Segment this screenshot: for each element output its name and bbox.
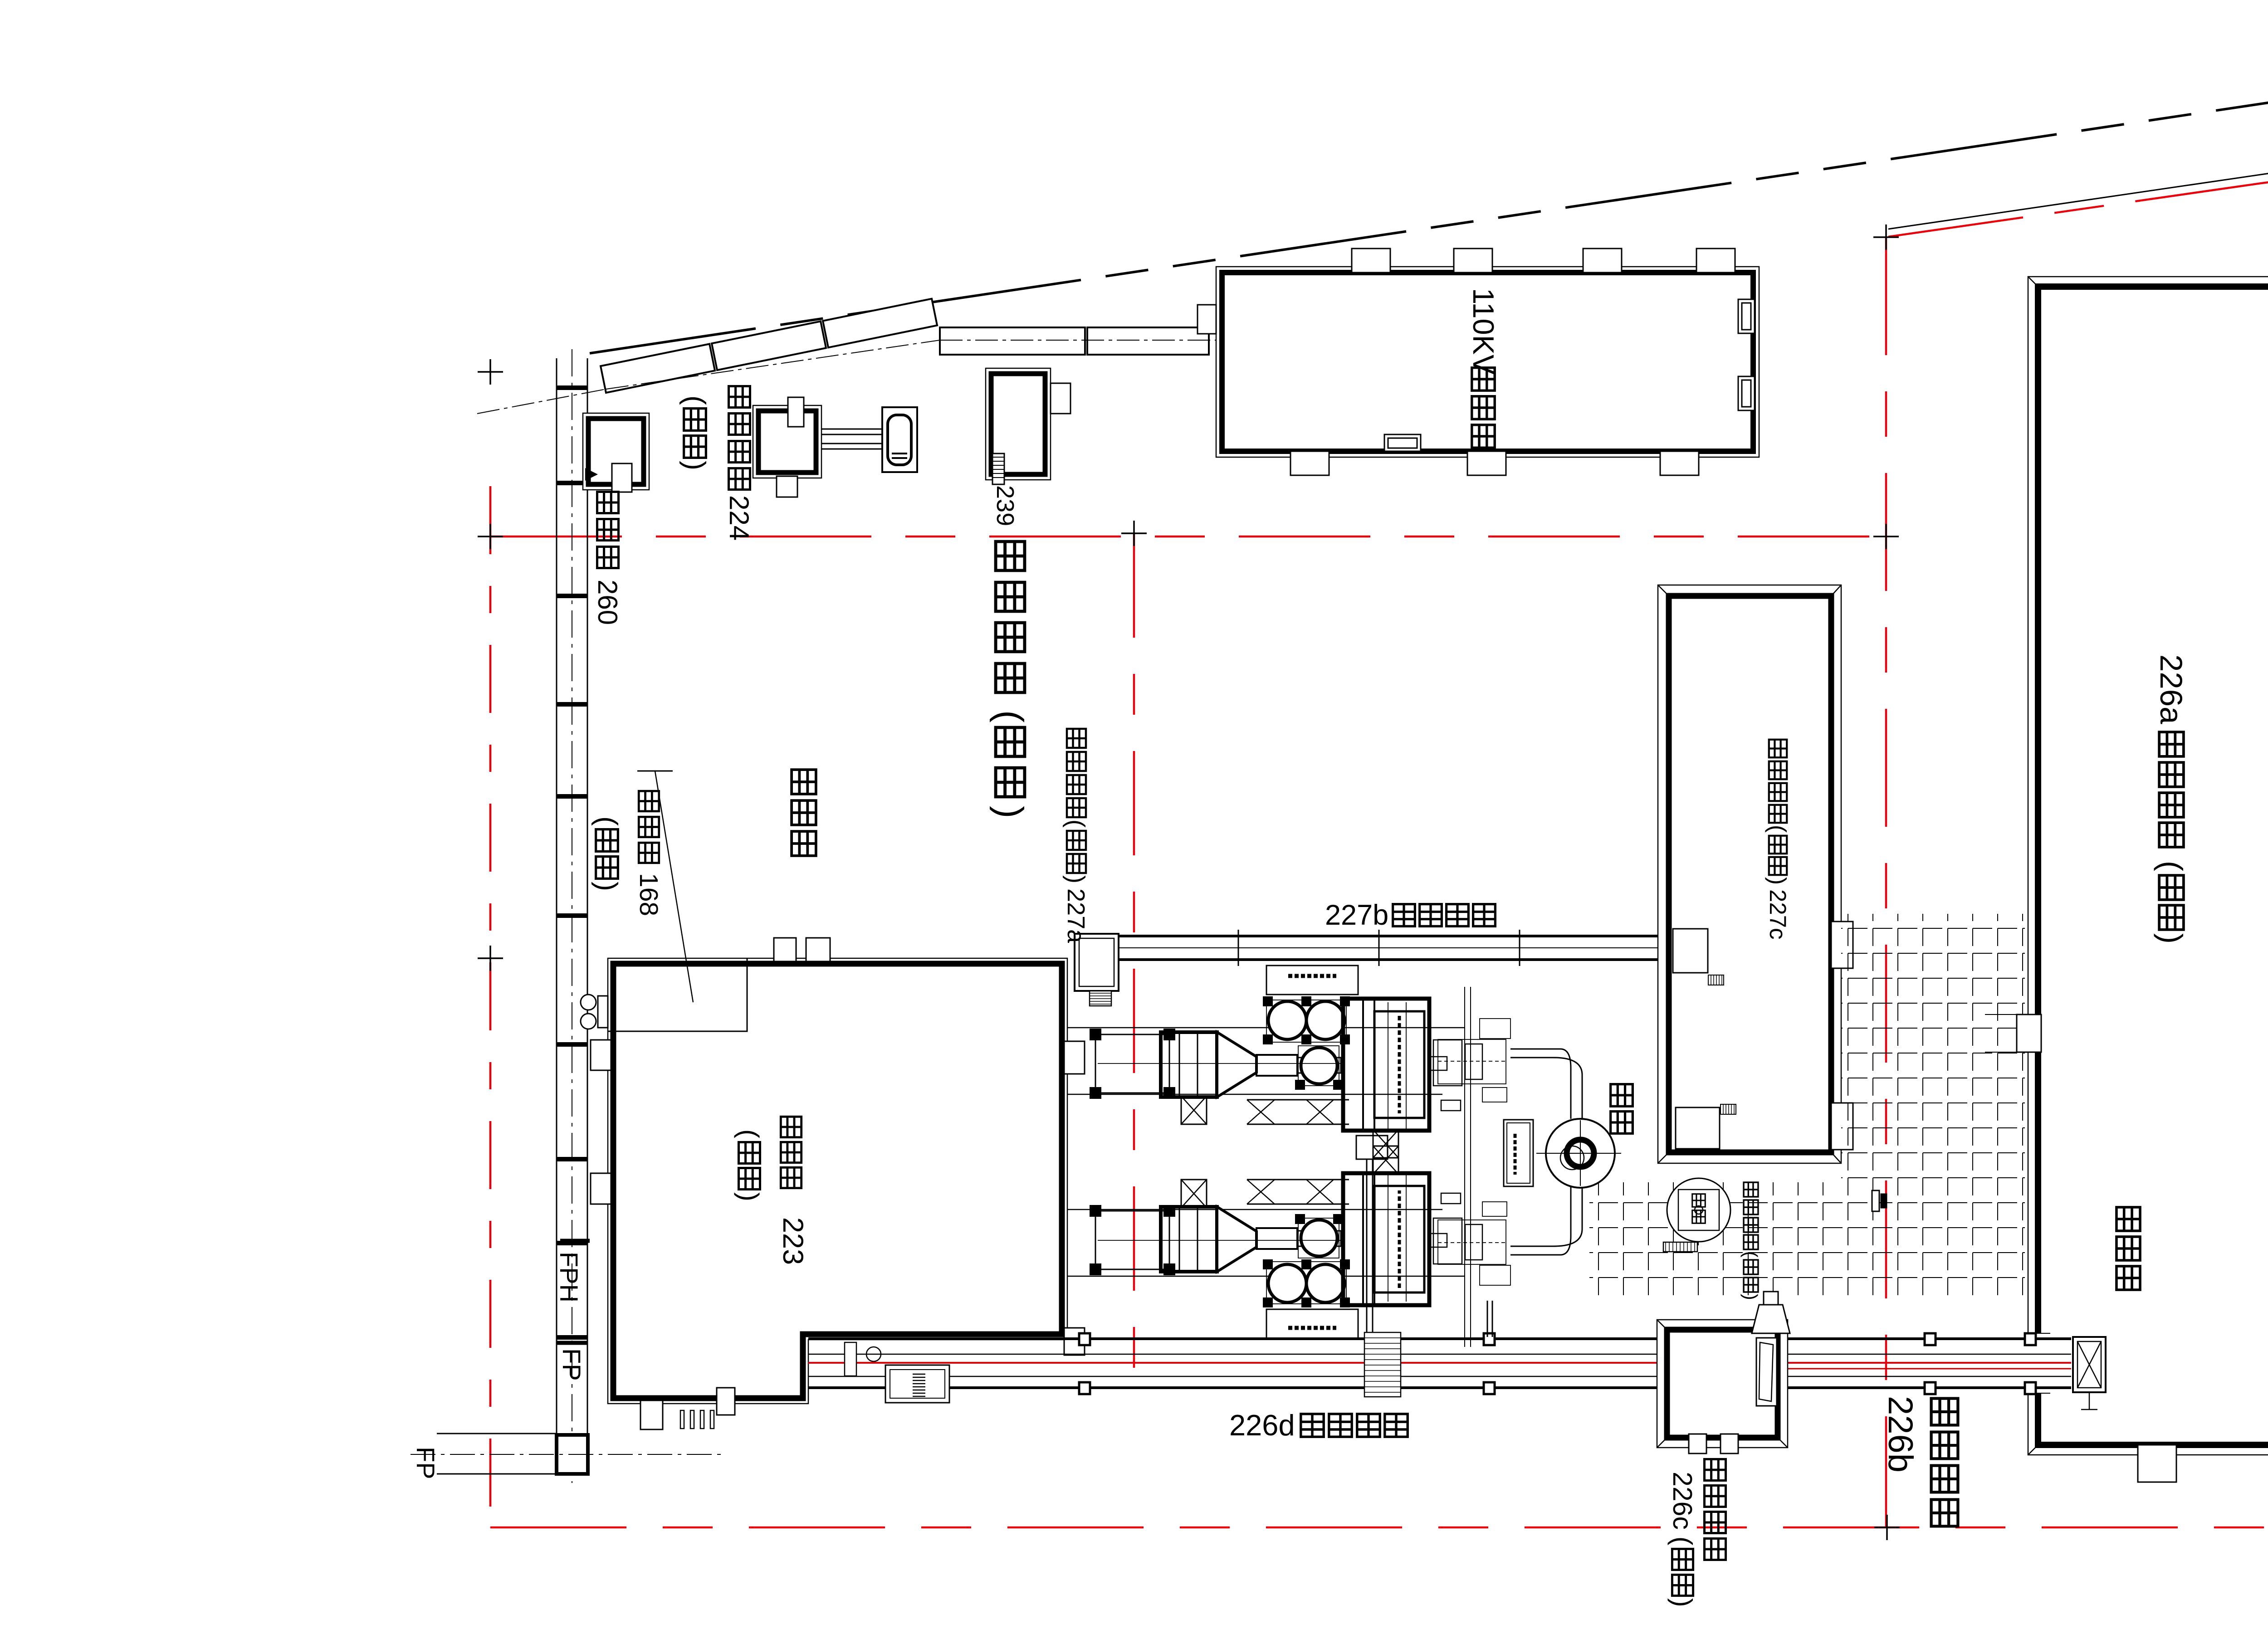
svg-text:168: 168 <box>634 873 663 916</box>
svg-text:(: ( <box>2154 861 2189 871</box>
svg-text:239: 239 <box>992 485 1019 526</box>
svg-text:): ) <box>1062 875 1090 883</box>
svg-text:(: ( <box>1062 819 1090 828</box>
svg-text:227b: 227b <box>1325 899 1388 931</box>
svg-text:FP: FP <box>557 1348 586 1381</box>
svg-text:226d: 226d <box>1229 1409 1295 1442</box>
svg-text:): ) <box>989 806 1031 818</box>
svg-text:FP: FP <box>411 1447 440 1479</box>
svg-text:110KV: 110KV <box>1467 288 1500 375</box>
svg-text:): ) <box>2154 933 2189 944</box>
svg-text:227c: 227c <box>1765 889 1791 940</box>
svg-text:(: ( <box>1740 1251 1761 1258</box>
svg-text:): ) <box>1667 1598 1697 1607</box>
svg-text:(: ( <box>679 395 711 405</box>
svg-text:(: ( <box>989 710 1031 722</box>
svg-text:224: 224 <box>724 495 754 541</box>
svg-text:(: ( <box>734 1129 764 1138</box>
svg-text:(: ( <box>1765 825 1791 833</box>
svg-text:226c: 226c <box>1667 1472 1697 1530</box>
svg-text:223: 223 <box>777 1217 809 1265</box>
svg-text:): ) <box>1740 1294 1761 1300</box>
svg-text:(: ( <box>591 816 623 826</box>
svg-text:227a: 227a <box>1062 888 1090 943</box>
svg-text:FPH: FPH <box>555 1252 583 1302</box>
svg-text:): ) <box>591 882 623 891</box>
svg-text:(: ( <box>1667 1536 1697 1546</box>
svg-text:226b: 226b <box>1881 1396 1920 1473</box>
svg-text:): ) <box>679 461 711 470</box>
svg-text:226a: 226a <box>2154 654 2189 724</box>
svg-text:260: 260 <box>592 580 623 625</box>
svg-text:): ) <box>1765 877 1791 885</box>
svg-text:): ) <box>734 1192 764 1201</box>
